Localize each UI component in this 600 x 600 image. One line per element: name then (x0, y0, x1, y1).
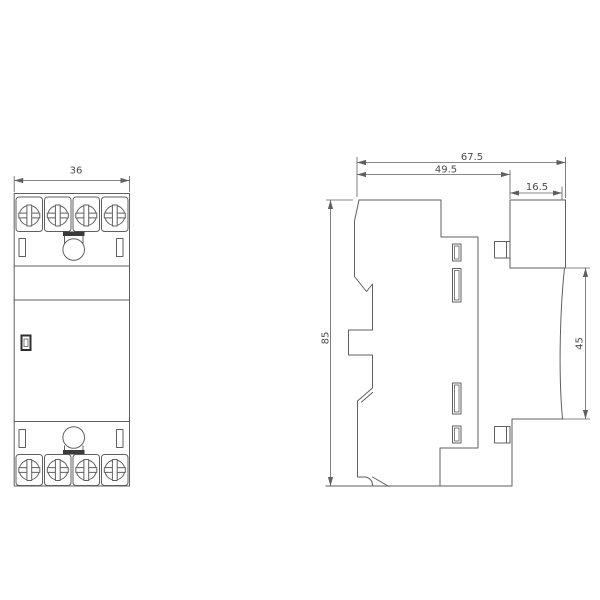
slot-inner (455, 246, 460, 259)
indicator-frame (22, 336, 31, 351)
terminal-row-top (16, 197, 128, 232)
arrowhead-top (583, 268, 588, 277)
seal-hole (63, 239, 85, 261)
din-rail-back-profile (349, 200, 373, 486)
arrowhead-right (121, 178, 130, 183)
clamp-section-top (14, 232, 129, 267)
front-top-block (510, 200, 566, 268)
side-window (19, 239, 26, 257)
terminal-screw (45, 197, 72, 232)
slot-inner (455, 385, 460, 412)
arrowhead-left (510, 190, 519, 195)
slot (453, 269, 462, 303)
screw-pocket-box (495, 427, 511, 444)
terminal-screw (102, 197, 129, 232)
side-window (117, 239, 124, 257)
screw-slot-vertical (84, 460, 89, 481)
clamp-section-bottom (19, 427, 123, 455)
column-slots (453, 244, 462, 443)
screw-pocket-box (495, 242, 511, 259)
screw-slot-vertical (27, 460, 32, 481)
terminal-screw (16, 197, 43, 232)
status-indicator-window (22, 336, 31, 351)
screw-pocket-bottom (495, 427, 511, 444)
terminal-screw (102, 455, 129, 486)
technical-drawing: 36 (0, 0, 600, 600)
screw-slot-vertical (55, 460, 60, 481)
arrowhead-right (501, 172, 510, 177)
arrowhead-right (557, 160, 566, 165)
terminal-screw (16, 455, 43, 486)
side-profile (326, 200, 566, 487)
dim-body-depth-49-5: 49.5 (357, 165, 510, 200)
dim-49-5-label: 49.5 (435, 165, 457, 176)
slot (453, 244, 462, 261)
terminal-screw (73, 455, 100, 486)
side-window (19, 430, 26, 448)
arrowhead-left (357, 160, 366, 165)
dim-panel-height-45: 45 (563, 268, 590, 419)
front-view: 36 (14, 166, 129, 487)
clamp-tab-bar (63, 232, 85, 237)
arrowhead-left (357, 172, 366, 177)
slot (453, 426, 462, 443)
dim-67-5-label: 67.5 (461, 152, 483, 163)
slot-inner (455, 428, 460, 441)
screw-slot-vertical (84, 205, 89, 226)
dim-36-label: 36 (70, 166, 83, 177)
arrowhead-bottom (583, 410, 588, 419)
side-view: 67.5 49.5 16.5 85 (321, 152, 591, 487)
slot (453, 383, 462, 414)
screw-slot-vertical (112, 460, 117, 481)
drawing-canvas: 36 (0, 0, 600, 600)
din-clip-release-tab (373, 477, 390, 487)
arrowhead-bottom (328, 477, 333, 486)
dim-85-label: 85 (321, 332, 332, 345)
arrowhead-left (14, 178, 23, 183)
screw-slot-vertical (55, 205, 60, 226)
side-window (117, 430, 124, 448)
terminal-row-bottom (16, 455, 128, 486)
front-lower-shelf (512, 419, 563, 486)
dim-45-label: 45 (575, 337, 586, 350)
clamp-tab-bar (63, 450, 85, 455)
terminal-screw (45, 455, 72, 486)
slot-inner (455, 271, 460, 301)
terminal-screw (73, 197, 100, 232)
dim-16-5-label: 16.5 (526, 182, 548, 193)
arrowhead-top (328, 200, 333, 209)
panel-face-curve (560, 268, 564, 419)
dim-width-36: 36 (14, 166, 129, 193)
dim-front-depth-16-5: 16.5 (510, 182, 562, 200)
din-clip-lever (362, 393, 373, 403)
screw-slot-vertical (112, 205, 117, 226)
screw-pocket-top (495, 242, 511, 259)
screw-slot-vertical (27, 205, 32, 226)
seal-hole (63, 427, 85, 449)
arrowhead-right (553, 190, 562, 195)
